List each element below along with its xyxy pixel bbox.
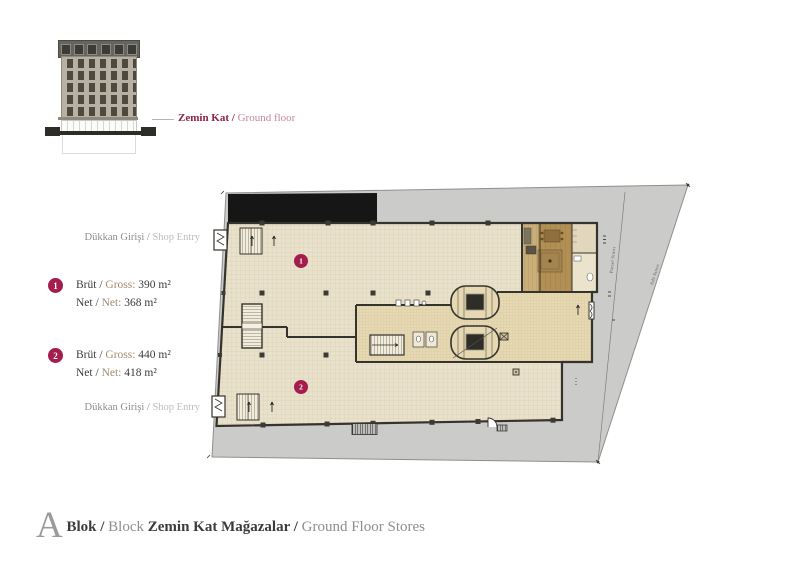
- floor-plan-svg: Parsel Sınırı Ada Sınırı: [200, 180, 710, 470]
- dormer-window: [87, 44, 97, 55]
- unit-1-gross-line: Brüt / Gross: 390 m²: [76, 276, 171, 294]
- chair: [561, 238, 564, 241]
- shop-entry-label-bottom: Dükkan Girişi / Shop Entry: [38, 402, 200, 413]
- elevator-upper: [466, 294, 484, 310]
- sidewalk-grate: [352, 424, 377, 435]
- unit-2-marker: 2: [294, 380, 308, 394]
- floor-callout-label: Zemin Kat / Ground floor: [178, 112, 295, 124]
- dormer-window: [101, 44, 111, 55]
- rug-center: [548, 259, 551, 262]
- toilet: [587, 273, 593, 281]
- cabinet: [526, 246, 536, 254]
- winding-stair-upper: [451, 286, 499, 319]
- sink: [574, 256, 581, 261]
- unit-2-areas: Brüt / Gross: 440 m² Net / Net: 418 m²: [76, 346, 171, 382]
- dormer-window: [114, 44, 124, 55]
- unit-1-areas: Brüt / Gross: 390 m² Net / Net: 368 m²: [76, 276, 171, 312]
- page-title: A Blok / Block Zemin Kat Mağazalar / Gro…: [36, 504, 425, 547]
- unit-2-net-line: Net / Net: 418 m²: [76, 364, 171, 382]
- entrance-canopy: [228, 193, 377, 223]
- floor-callout-english: Ground floor: [235, 112, 296, 124]
- foundation-outline: [62, 135, 136, 154]
- dormer-window: [127, 44, 137, 55]
- unit-1-number-badge: 1: [48, 278, 63, 293]
- shop-entry-label-top: Dükkan Girişi / Shop Entry: [38, 232, 200, 243]
- chair: [541, 232, 544, 235]
- floor-callout-turkish: Zemin Kat /: [178, 112, 235, 124]
- chair: [561, 232, 564, 235]
- building-elevation: [45, 30, 155, 155]
- facade-windows: [61, 56, 137, 120]
- dormer-window: [74, 44, 84, 55]
- scissor-stair: [242, 304, 262, 348]
- winding-stair-lower: [451, 326, 499, 359]
- chair: [541, 238, 544, 241]
- sofa: [524, 228, 531, 244]
- block-letter: A: [36, 505, 63, 546]
- unit-1-net-line: Net / Net: 368 m²: [76, 294, 171, 312]
- brochure-page: { "elevation": { "callout_bold": "Zemin …: [0, 0, 800, 565]
- dormer-window: [61, 44, 71, 55]
- unit-2-number-badge: 2: [48, 348, 63, 363]
- unit-2-marker-number: 2: [299, 383, 303, 392]
- unit-1-marker-number: 1: [299, 257, 303, 266]
- unit-2-gross-line: Brüt / Gross: 440 m²: [76, 346, 171, 364]
- dining-table: [544, 230, 560, 242]
- unit-1-marker: 1: [294, 254, 308, 268]
- floor-plan: Parsel Sınırı Ada Sınırı: [200, 180, 710, 470]
- core-straight-stair: [370, 335, 404, 355]
- callout-leader-line: [152, 119, 174, 120]
